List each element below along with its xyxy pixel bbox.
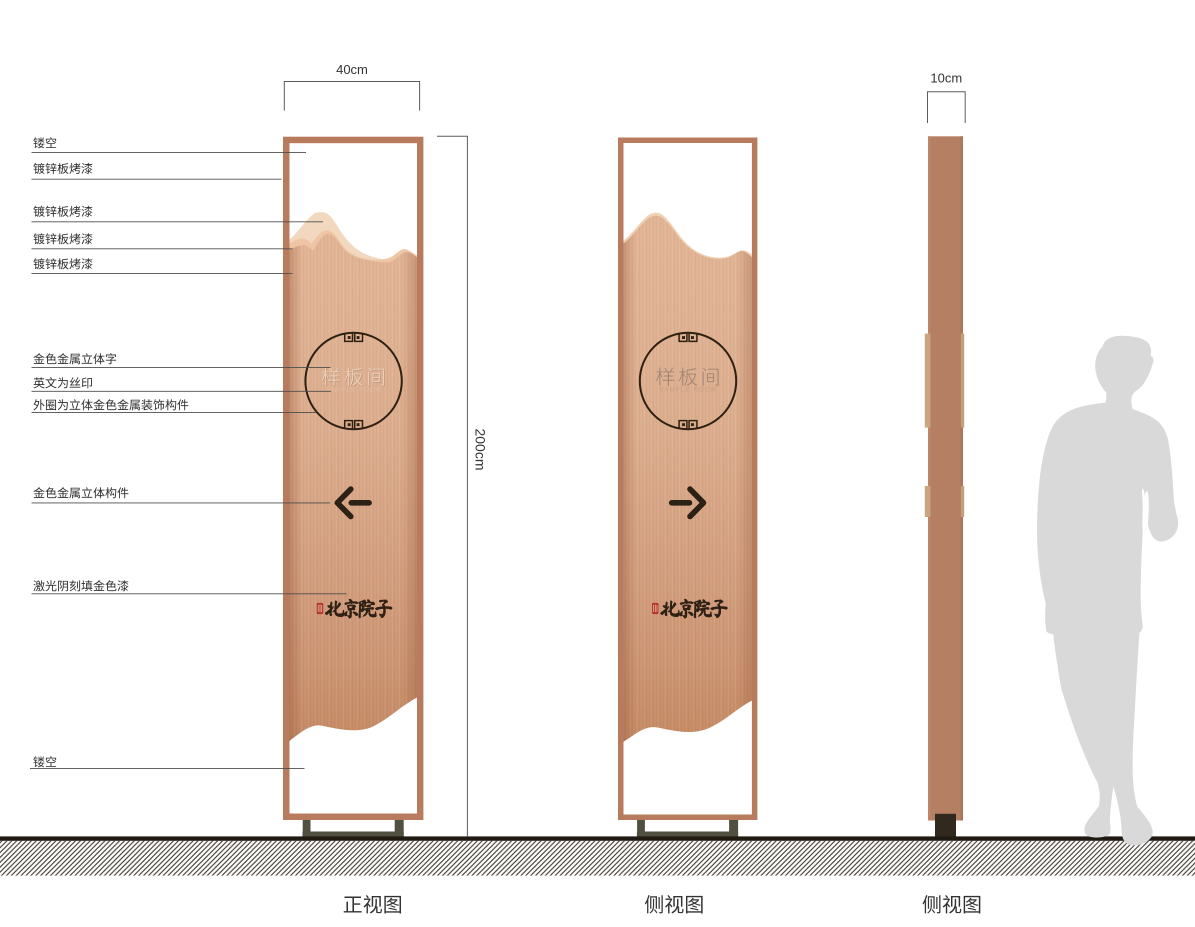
svg-text:40cm: 40cm [336, 62, 368, 77]
svg-text:SAMPLE ROOM: SAMPLE ROOM [659, 388, 717, 394]
svg-text:10cm: 10cm [930, 71, 962, 86]
svg-text:200cm: 200cm [473, 428, 489, 470]
svg-text:SAMPLE ROOM: SAMPLE ROOM [325, 388, 383, 394]
